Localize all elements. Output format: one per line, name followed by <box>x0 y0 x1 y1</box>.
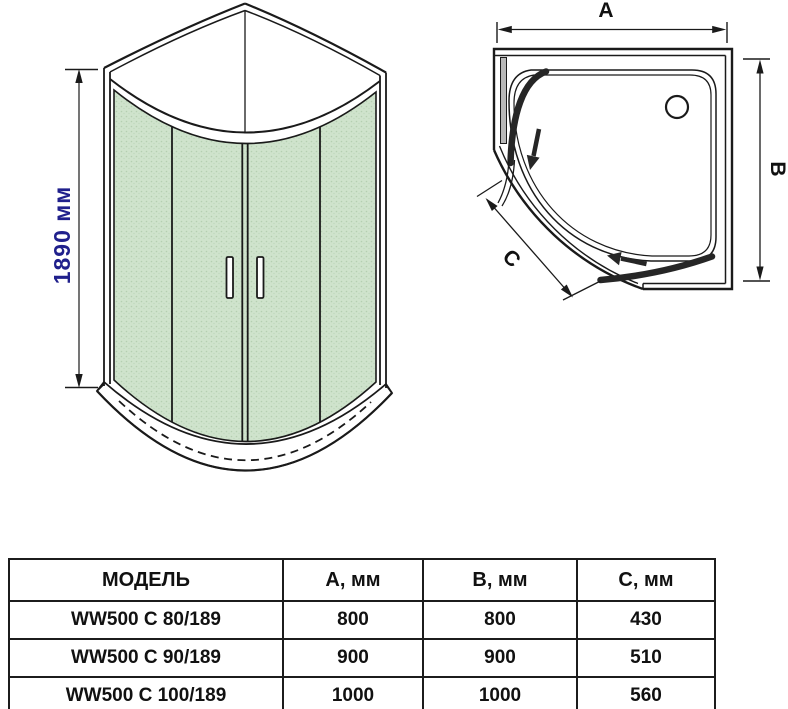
cell-c: 430 <box>577 601 715 639</box>
cell-model: WW500 C 100/189 <box>9 677 283 709</box>
right-frame-profile <box>380 73 386 389</box>
header-a-mm: А, мм <box>283 559 423 601</box>
header-b-mm: В, мм <box>423 559 577 601</box>
model-spec-table: МОДЕЛЬ А, мм В, мм С, мм WW500 C 80/189 … <box>8 558 716 709</box>
left-frame-profile <box>104 68 110 386</box>
dim-a-label: A <box>584 0 628 22</box>
door-motion-arrow-down <box>527 129 540 170</box>
sliding-door-left <box>511 72 547 164</box>
cell-b: 800 <box>423 601 577 639</box>
technical-drawing-page: 1890 мм <box>0 0 788 709</box>
sliding-door-left-edge <box>498 160 515 206</box>
table-row: WW500 C 80/189 800 800 430 <box>9 601 715 639</box>
header-model: МОДЕЛЬ <box>9 559 283 601</box>
header-c-mm: С, мм <box>577 559 715 601</box>
dim-b-label: B <box>766 147 788 191</box>
right-door-handle <box>257 257 264 298</box>
height-dimension-label: 1890 мм <box>49 155 75 315</box>
cell-b: 900 <box>423 639 577 677</box>
wall-jamb-profile <box>501 58 507 144</box>
cell-c: 510 <box>577 639 715 677</box>
cell-a: 800 <box>283 601 423 639</box>
cell-a: 1000 <box>283 677 423 709</box>
dimension-a <box>497 22 727 43</box>
glass-panels <box>114 90 376 442</box>
dim-arrow-up <box>75 69 82 83</box>
top-view-drawing <box>440 0 788 330</box>
table-header-row: МОДЕЛЬ А, мм В, мм С, мм <box>9 559 715 601</box>
cell-b: 1000 <box>423 677 577 709</box>
cell-model: WW500 C 90/189 <box>9 639 283 677</box>
dim-arrow-down <box>75 374 82 388</box>
table-row: WW500 C 90/189 900 900 510 <box>9 639 715 677</box>
left-door-handle <box>227 257 234 298</box>
cell-c: 560 <box>577 677 715 709</box>
cell-model: WW500 C 80/189 <box>9 601 283 639</box>
table-row: WW500 C 100/189 1000 1000 560 <box>9 677 715 709</box>
drain-circle-icon <box>666 96 688 118</box>
cell-a: 900 <box>283 639 423 677</box>
